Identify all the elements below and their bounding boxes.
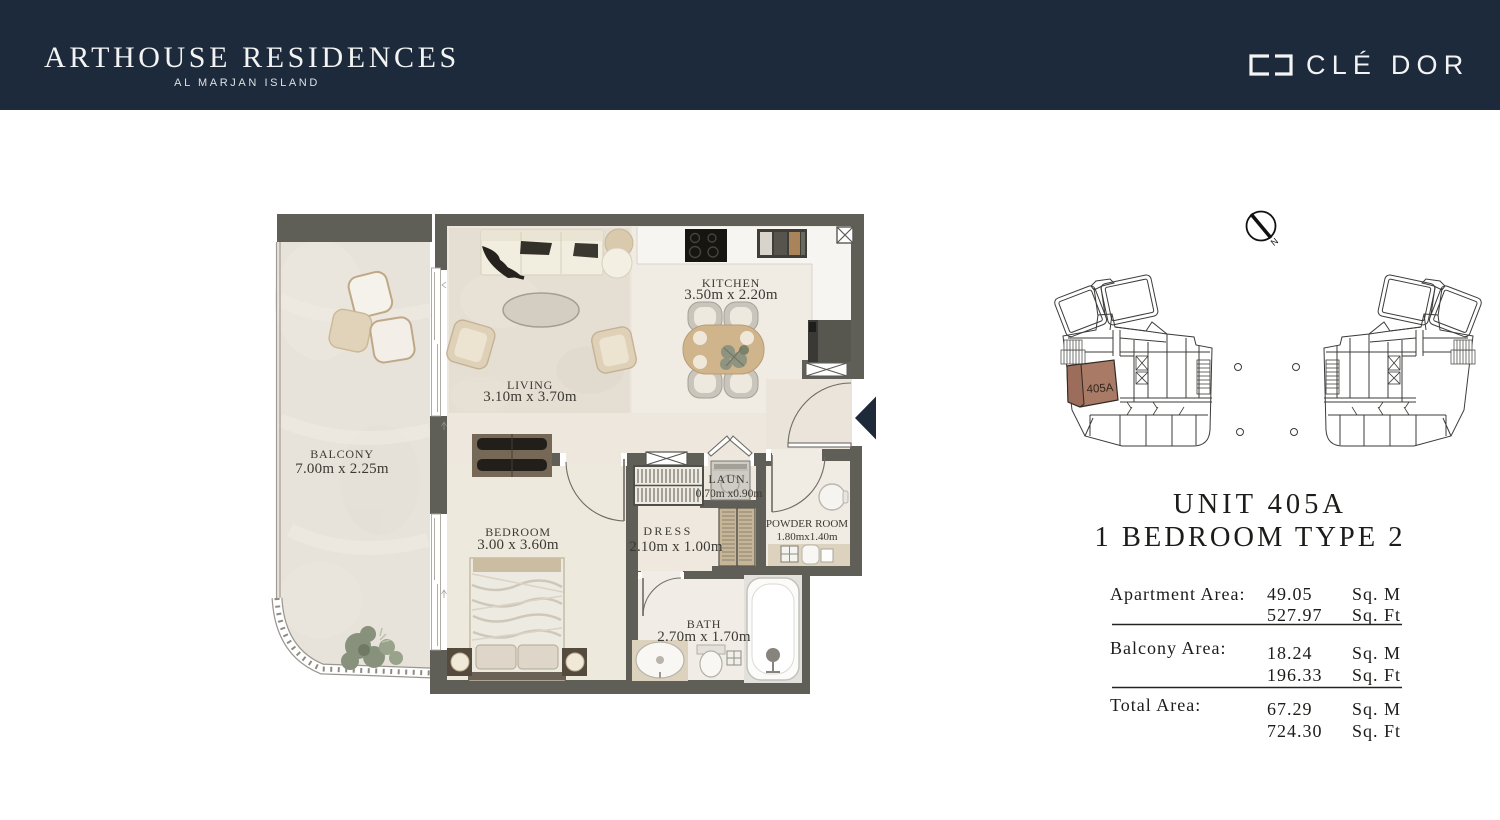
svg-text:BALCONY: BALCONY [310, 447, 374, 461]
svg-text:7.00m x 2.25m: 7.00m x 2.25m [295, 461, 389, 477]
svg-text:Total Area:: Total Area: [1110, 695, 1201, 715]
svg-text:Sq. Ft: Sq. Ft [1352, 605, 1401, 625]
svg-text:Balcony Area:: Balcony Area: [1110, 638, 1226, 658]
svg-text:67.29: 67.29 [1267, 699, 1313, 719]
svg-text:1 BEDROOM TYPE 2: 1 BEDROOM TYPE 2 [1094, 522, 1405, 553]
svg-text:18.24: 18.24 [1267, 643, 1313, 663]
svg-text:DRESS: DRESS [643, 524, 692, 538]
svg-text:ARTHOUSE RESIDENCES: ARTHOUSE RESIDENCES [44, 41, 460, 74]
svg-text:1.80mx1.40m: 1.80mx1.40m [776, 531, 838, 543]
svg-text:527.97: 527.97 [1267, 605, 1323, 625]
svg-text:0.70m x0.90m: 0.70m x0.90m [696, 488, 763, 500]
svg-text:Sq. M: Sq. M [1352, 584, 1401, 604]
svg-text:AL MARJAN ISLAND: AL MARJAN ISLAND [174, 77, 320, 89]
svg-text:3.50m x 2.20m: 3.50m x 2.20m [684, 287, 778, 303]
svg-text:CLÉ DOR: CLÉ DOR [1306, 50, 1469, 80]
svg-text:49.05: 49.05 [1267, 584, 1313, 604]
svg-text:405A: 405A [1086, 382, 1114, 396]
svg-text:Sq. M: Sq. M [1352, 699, 1401, 719]
svg-text:LAUN.: LAUN. [708, 472, 749, 486]
svg-text:Sq. Ft: Sq. Ft [1352, 665, 1401, 685]
svg-text:UNIT 405A: UNIT 405A [1173, 489, 1347, 520]
svg-text:2.10m x 1.00m: 2.10m x 1.00m [629, 539, 723, 555]
svg-text:3.00 x 3.60m: 3.00 x 3.60m [477, 537, 559, 553]
svg-text:Sq. M: Sq. M [1352, 643, 1401, 663]
svg-text:Apartment Area:: Apartment Area: [1110, 584, 1245, 604]
svg-text:196.33: 196.33 [1267, 665, 1323, 685]
svg-text:Sq. Ft: Sq. Ft [1352, 721, 1401, 741]
svg-text:3.10m x 3.70m: 3.10m x 3.70m [483, 389, 577, 405]
svg-text:POWDER ROOM: POWDER ROOM [766, 518, 848, 530]
svg-text:724.30: 724.30 [1267, 721, 1323, 741]
svg-text:2.70m x 1.70m: 2.70m x 1.70m [657, 629, 751, 645]
